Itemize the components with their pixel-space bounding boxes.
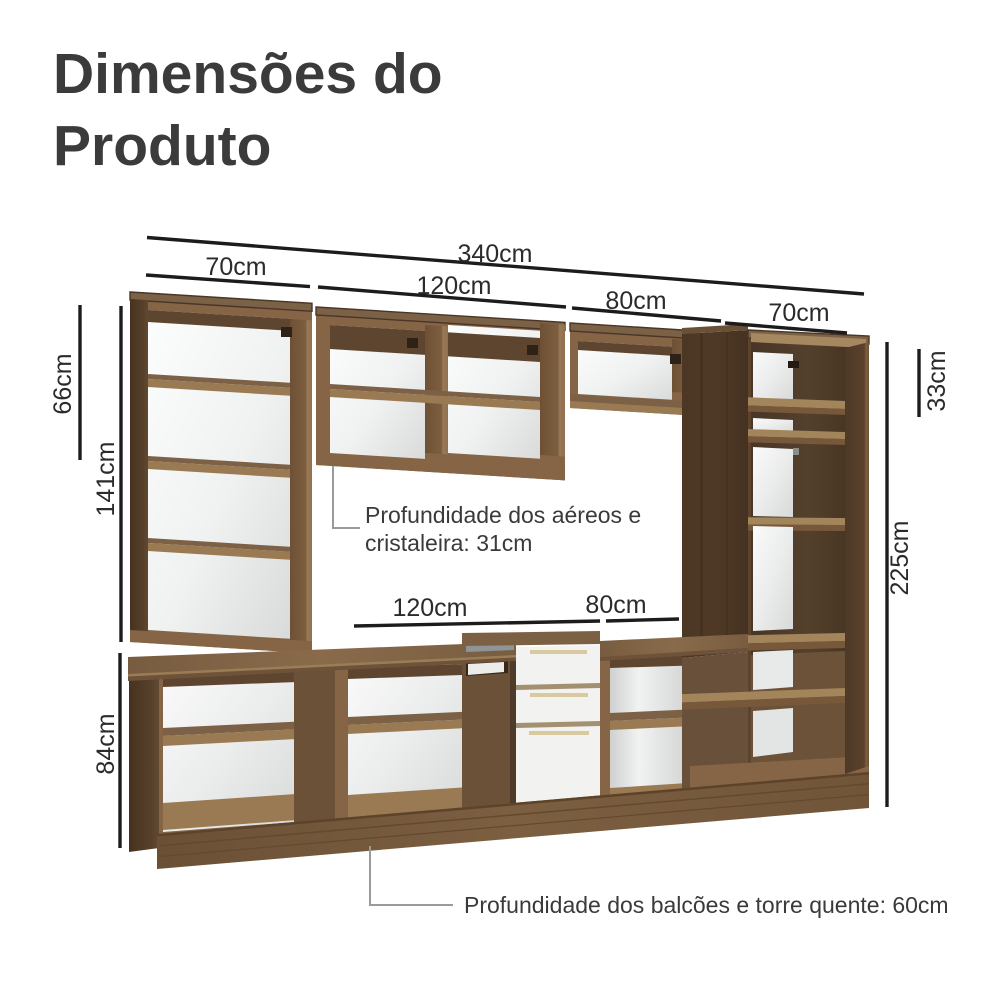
- svg-text:141cm: 141cm: [92, 441, 120, 516]
- svg-text:80cm: 80cm: [585, 591, 646, 619]
- svg-text:Profundidade dos balcões e tor: Profundidade dos balcões e torre quente:…: [464, 892, 949, 918]
- svg-text:120cm: 120cm: [392, 594, 467, 622]
- svg-text:340cm: 340cm: [457, 240, 532, 268]
- svg-text:Produto: Produto: [53, 114, 271, 178]
- svg-text:70cm: 70cm: [768, 299, 829, 327]
- svg-text:66cm: 66cm: [49, 353, 77, 414]
- svg-text:120cm: 120cm: [416, 272, 491, 300]
- svg-text:Dimensões do: Dimensões do: [53, 42, 443, 106]
- svg-text:cristaleira: 31cm: cristaleira: 31cm: [365, 530, 532, 556]
- svg-text:33cm: 33cm: [923, 350, 951, 411]
- svg-text:84cm: 84cm: [92, 713, 120, 774]
- svg-text:Profundidade dos aéreos e: Profundidade dos aéreos e: [365, 502, 641, 528]
- svg-text:225cm: 225cm: [886, 520, 914, 595]
- svg-text:80cm: 80cm: [605, 287, 666, 315]
- svg-text:70cm: 70cm: [205, 253, 266, 281]
